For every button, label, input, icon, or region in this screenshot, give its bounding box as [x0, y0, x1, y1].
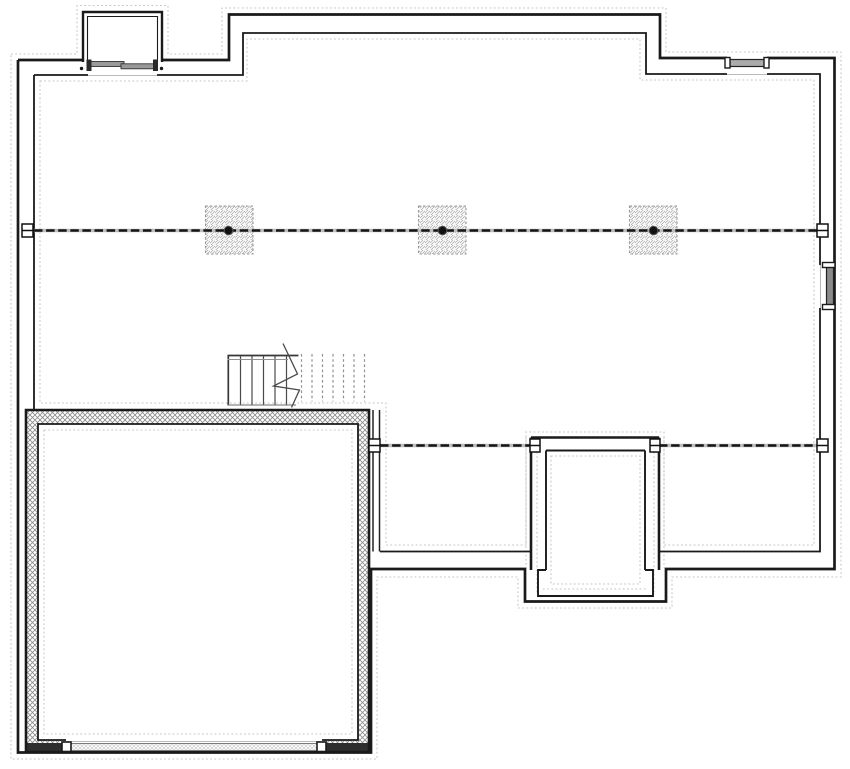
stoop-wall-outer	[531, 438, 659, 571]
footing-garage	[44, 430, 352, 734]
footing-stoop-inner	[543, 456, 648, 589]
exterior-wall-outer	[18, 15, 835, 753]
well-window-jamb-left	[87, 60, 92, 72]
well-window-sash-left	[91, 62, 125, 67]
garage-door-flank-right	[320, 743, 369, 752]
stoop-wall-inner	[538, 451, 653, 597]
beam-plate-stoop-right	[650, 439, 660, 452]
beam-plate-main-right	[817, 224, 828, 237]
beam-plate-rear-garage	[369, 439, 380, 452]
garage-wall-inner-line	[38, 424, 358, 740]
column-post-2	[438, 226, 447, 235]
well-window-jamb-right	[153, 60, 158, 72]
garage-door-jamb-left	[62, 742, 71, 752]
well-marker-dot-left	[80, 67, 83, 70]
stair-treads	[241, 356, 287, 405]
window-right-bar	[827, 267, 834, 308]
beam-plate-rear-right	[817, 439, 828, 452]
window-top-cap-left	[725, 58, 730, 69]
well-marker-dot-right	[160, 67, 163, 70]
window-top-cap-right	[764, 58, 769, 69]
garage-wall-outer-line	[26, 410, 369, 752]
window-top-bar	[727, 60, 767, 67]
garage-door-jamb-right	[317, 742, 326, 752]
beam-plate-stoop-left	[530, 439, 540, 452]
window-right-cap-top	[823, 263, 836, 268]
plan-page	[0, 0, 850, 769]
floor-plan	[0, 0, 850, 769]
well-window-sash-right	[121, 64, 155, 69]
stair-treads-hidden	[302, 354, 365, 402]
footing-inner	[40, 39, 814, 545]
garage-wall-hatch	[26, 410, 369, 752]
window-right-cap-bottom	[823, 305, 836, 310]
garage-frame-wall	[373, 410, 380, 552]
garage-door-panel	[70, 744, 318, 751]
window-well-outline-outer	[83, 12, 162, 62]
column-post-1	[224, 226, 233, 235]
exterior-wall-inner	[34, 33, 820, 552]
beam-plate-main-left	[22, 224, 33, 237]
column-post-3	[649, 226, 658, 235]
footing-outer	[11, 6, 841, 760]
